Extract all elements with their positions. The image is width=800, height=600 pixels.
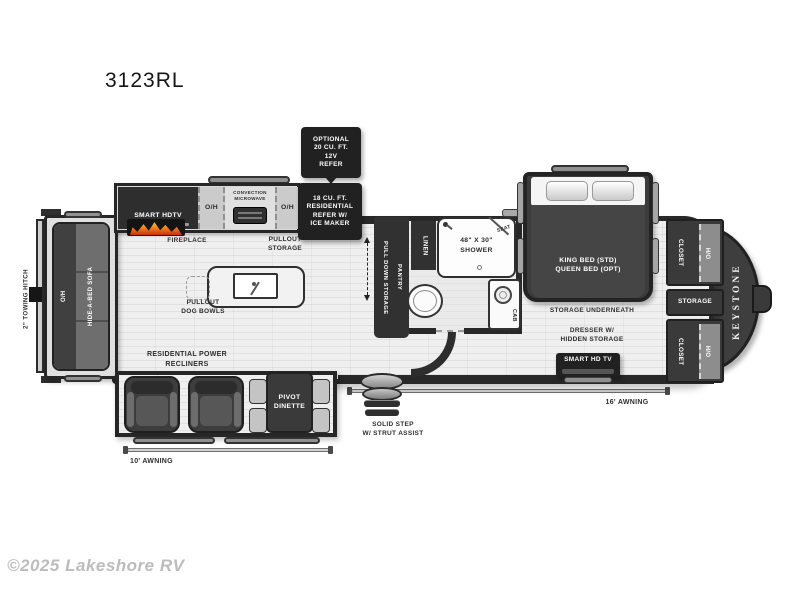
- closet-bottom-oh: O/H: [699, 324, 720, 379]
- refer-line: 18 CU. FT.: [298, 195, 362, 203]
- dinette-chair-2: [249, 408, 267, 433]
- solid-step-line2: W/ STRUT ASSIST: [350, 429, 436, 438]
- shower-spray-icon: [446, 224, 452, 230]
- bedroom-tv-label: SMART HD TV: [556, 356, 620, 364]
- awning-16-cap-left: [347, 387, 352, 395]
- bed-label-2: QUEEN BED (OPT): [531, 266, 645, 275]
- flame-icon: [130, 221, 182, 235]
- fireplace-label: FIREPLACE: [152, 236, 222, 245]
- dresser-line2: HIDDEN STORAGE: [538, 335, 646, 344]
- dresser-line1: DRESSER W/: [538, 326, 646, 335]
- shower-label: SHOWER: [439, 246, 514, 256]
- rear-hitch-receiver: [29, 287, 42, 302]
- dinette-label-2: DINETTE: [268, 403, 311, 412]
- linen-cabinet: LINEN: [411, 221, 436, 270]
- bed-slide-handle-right-2: [652, 238, 659, 274]
- awning-10-cap-left: [123, 446, 128, 454]
- front-storage: STORAGE: [666, 289, 724, 316]
- refer-line: RESIDENTIAL: [298, 203, 362, 211]
- bed-slide-handle-left-1: [517, 182, 524, 224]
- recliner-right: [188, 376, 244, 433]
- optional-refer-pointer: [325, 177, 337, 184]
- dog-bowls-label: PULLOUT DOG BOWLS: [168, 298, 238, 316]
- fireplace-box: [127, 219, 185, 236]
- bed-blanket: KING BED (STD) QUEEN BED (OPT): [531, 205, 645, 298]
- shower-drain: [477, 265, 482, 270]
- sofa-slide-topper-bottom: [64, 375, 102, 382]
- sofa-oh-cabinet: O/H: [54, 224, 76, 369]
- bed-slide-handle-left-2: [517, 238, 524, 274]
- oh-left-label: O/H: [205, 203, 218, 213]
- closet-top: CLOSET O/H: [666, 219, 724, 286]
- sofa-slide-topper-top: [64, 211, 102, 218]
- pantry-strip: PULL DOWN STORAGE PANTRY: [374, 217, 409, 338]
- vanity-cabinet: CAB: [488, 279, 521, 330]
- toilet-bowl-inner: [413, 290, 437, 312]
- sofa-cushions: HIDE-A-BED SOFA: [76, 224, 108, 369]
- closet-bottom-oh-label: O/H: [701, 324, 720, 379]
- convection-microwave: CONVECTION MICROWAVE: [225, 187, 275, 229]
- dresser-label: DRESSER W/ HIDDEN STORAGE: [538, 326, 646, 344]
- recliners-line1: RESIDENTIAL POWER: [135, 350, 239, 360]
- bedroom-tv-stand: [564, 377, 612, 383]
- bedroom-tv-screen: [562, 369, 614, 374]
- pantry-label-2: PANTRY: [392, 217, 406, 338]
- floorplan-page: 3123RL KEYSTONE 2" TOWING HITCH O/H HIDE…: [0, 0, 800, 600]
- solid-step-line1: SOLID STEP: [350, 420, 436, 429]
- bed-label-1: KING BED (STD): [531, 257, 645, 266]
- pullout-storage-line2: STORAGE: [250, 244, 320, 253]
- dinette-chair-1: [249, 379, 267, 404]
- closet-top-label: CLOSET: [674, 225, 686, 281]
- refer-line: ICE MAKER: [298, 220, 362, 228]
- bed-pillow-left: [546, 181, 588, 201]
- awning-10-label: 10' AWNING: [130, 457, 196, 467]
- dinette-chair-4: [312, 408, 330, 433]
- recliners-label: RESIDENTIAL POWER RECLINERS: [135, 350, 239, 370]
- kitchen-oh-cabinet-right: O/H: [275, 187, 300, 229]
- hide-a-bed-sofa: O/H HIDE-A-BED SOFA: [52, 222, 110, 371]
- entry-step-2: [362, 387, 402, 401]
- solid-step-label: SOLID STEP W/ STRUT ASSIST: [350, 420, 436, 438]
- closet-top-oh-label: O/H: [701, 224, 720, 282]
- pantry-label-1: PULL DOWN STORAGE: [378, 217, 392, 338]
- living-slide-skirt-right: [224, 437, 320, 444]
- kitchen-oh-cabinet-left: O/H: [198, 187, 225, 229]
- kingpin-hitch: [752, 285, 772, 313]
- awning-10-cap-right: [328, 446, 333, 454]
- awning-16-cap-right: [665, 387, 670, 395]
- dog-bowls-line2: DOG BOWLS: [168, 307, 238, 316]
- bed-pillow-right: [592, 181, 634, 201]
- residential-refer-box: 18 CU. FT. RESIDENTIAL REFER W/ ICE MAKE…: [298, 183, 362, 240]
- recliners-line2: RECLINERS: [135, 360, 239, 370]
- refer-line: REFER W/: [298, 212, 362, 220]
- entry-step-4: [365, 409, 399, 416]
- living-slide-skirt-left: [133, 437, 215, 444]
- recliner-left: [124, 376, 180, 433]
- copyright: ©2025 Lakeshore RV: [7, 556, 184, 576]
- closet-top-oh: O/H: [699, 224, 720, 282]
- dog-bowls-line1: PULLOUT: [168, 298, 238, 307]
- storage-underneath-label: STORAGE UNDERNEATH: [528, 306, 656, 315]
- optrefer-line: OPTIONAL: [301, 136, 361, 144]
- dog-bowl-drawer: [186, 276, 210, 300]
- entry-step-3: [364, 400, 400, 407]
- awning-16-label: 16' AWNING: [587, 398, 667, 408]
- vanity-sink-inner: [499, 291, 507, 299]
- page-title: 3123RL: [105, 69, 185, 93]
- dinette-label-1: PIVOT: [268, 394, 311, 403]
- awning-10-line: [127, 448, 331, 452]
- closet-bottom: CLOSET O/H: [666, 319, 724, 383]
- oh-right-label: O/H: [281, 203, 294, 213]
- front-storage-label: STORAGE: [678, 298, 712, 306]
- shower-size-label: 48" X 30": [439, 236, 514, 246]
- closet-bottom-label: CLOSET: [674, 325, 686, 378]
- vanity-cab-label: CAB: [508, 301, 518, 329]
- dinette-table: PIVOT DINETTE: [266, 372, 313, 433]
- brand-label: KEYSTONE: [729, 250, 745, 354]
- optrefer-line: 20 CU. FT.: [301, 144, 361, 152]
- optrefer-line: REFER: [301, 161, 361, 169]
- shower: 48" X 30" SHOWER SEAT: [437, 217, 516, 278]
- microwave-label-2: MICROWAVE: [225, 196, 275, 202]
- bedroom-tv-box: SMART HD TV: [556, 353, 620, 377]
- optrefer-line: 12V: [301, 153, 361, 161]
- microwave-unit: [233, 207, 267, 224]
- bed-slide-handle-right-1: [652, 182, 659, 224]
- dinette-chair-3: [312, 379, 330, 404]
- optional-refer-box: OPTIONAL 20 CU. FT. 12V REFER: [301, 127, 361, 178]
- pantry-arrow: [363, 237, 370, 301]
